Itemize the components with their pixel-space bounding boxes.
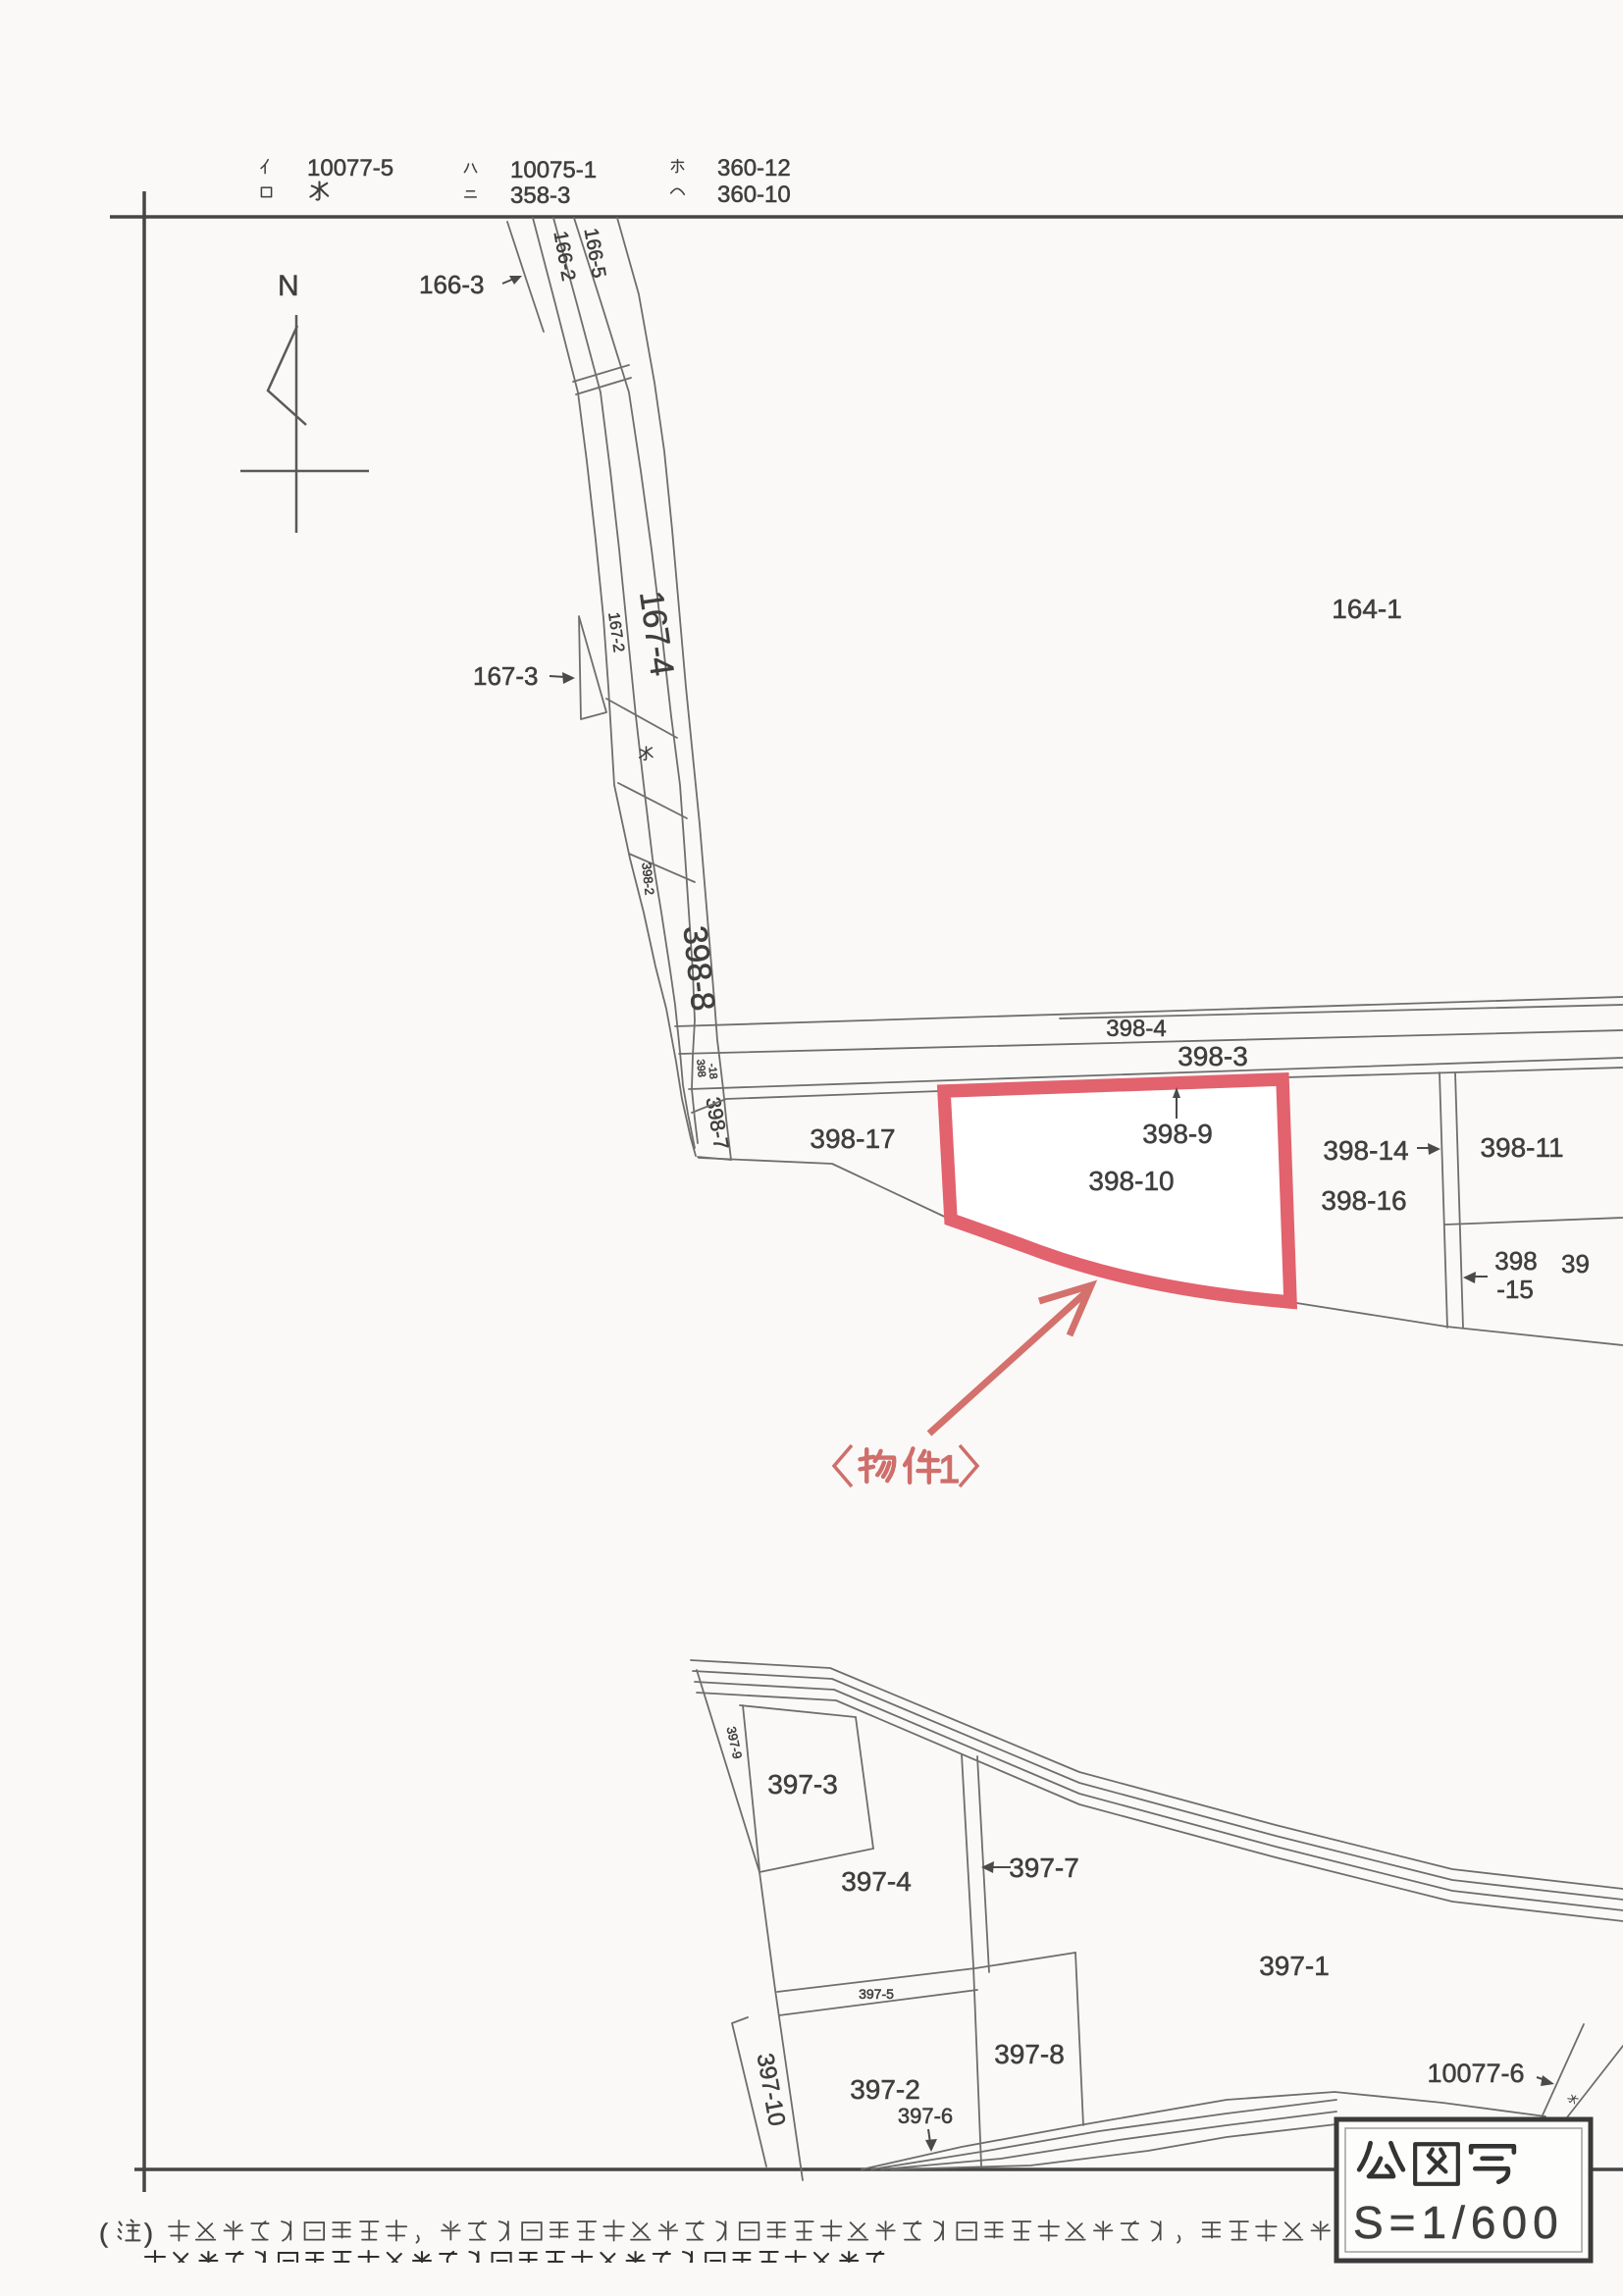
svg-text:166-3: 166-3 — [419, 270, 485, 299]
svg-text:398-9: 398-9 — [1142, 1119, 1213, 1149]
svg-text:397-5: 397-5 — [859, 1986, 894, 2002]
svg-text:(: ( — [99, 2218, 108, 2248]
svg-text:397-3: 397-3 — [767, 1769, 838, 1800]
svg-text:397-7: 397-7 — [1009, 1852, 1079, 1883]
svg-text:397-8: 397-8 — [994, 2039, 1065, 2069]
svg-text:): ) — [144, 2218, 153, 2248]
svg-text:10077-5: 10077-5 — [307, 155, 393, 182]
svg-text:398-10: 398-10 — [1088, 1166, 1174, 1196]
svg-text:398-17: 398-17 — [810, 1123, 895, 1154]
svg-text:397-6: 397-6 — [898, 2104, 953, 2128]
svg-text:360-10: 360-10 — [717, 182, 791, 208]
svg-text:167-3: 167-3 — [473, 661, 539, 691]
svg-text:164-1: 164-1 — [1332, 594, 1402, 624]
svg-text:360-12: 360-12 — [717, 155, 791, 182]
svg-text:398-4: 398-4 — [1106, 1016, 1166, 1042]
svg-text:-18: -18 — [706, 1063, 718, 1079]
svg-text:-15: -15 — [1496, 1275, 1534, 1304]
svg-text:398-14: 398-14 — [1323, 1135, 1408, 1166]
svg-text:398-11: 398-11 — [1480, 1132, 1563, 1163]
svg-text:398: 398 — [1494, 1246, 1537, 1276]
svg-text:1: 1 — [938, 1448, 960, 1491]
svg-text:397-4: 397-4 — [841, 1866, 912, 1897]
svg-text:397-2: 397-2 — [850, 2074, 920, 2105]
svg-text:358-3: 358-3 — [510, 183, 570, 209]
svg-text:10077-6: 10077-6 — [1427, 2059, 1524, 2088]
svg-text:398-16: 398-16 — [1321, 1185, 1406, 1216]
svg-text:S=1/600: S=1/600 — [1353, 2197, 1564, 2248]
svg-text:39: 39 — [1561, 1249, 1590, 1278]
svg-text:10075-1: 10075-1 — [510, 157, 597, 183]
svg-text:398: 398 — [694, 1059, 707, 1077]
svg-text:397-1: 397-1 — [1259, 1951, 1330, 1981]
svg-text:N: N — [278, 270, 299, 302]
svg-text:398-3: 398-3 — [1178, 1041, 1248, 1071]
